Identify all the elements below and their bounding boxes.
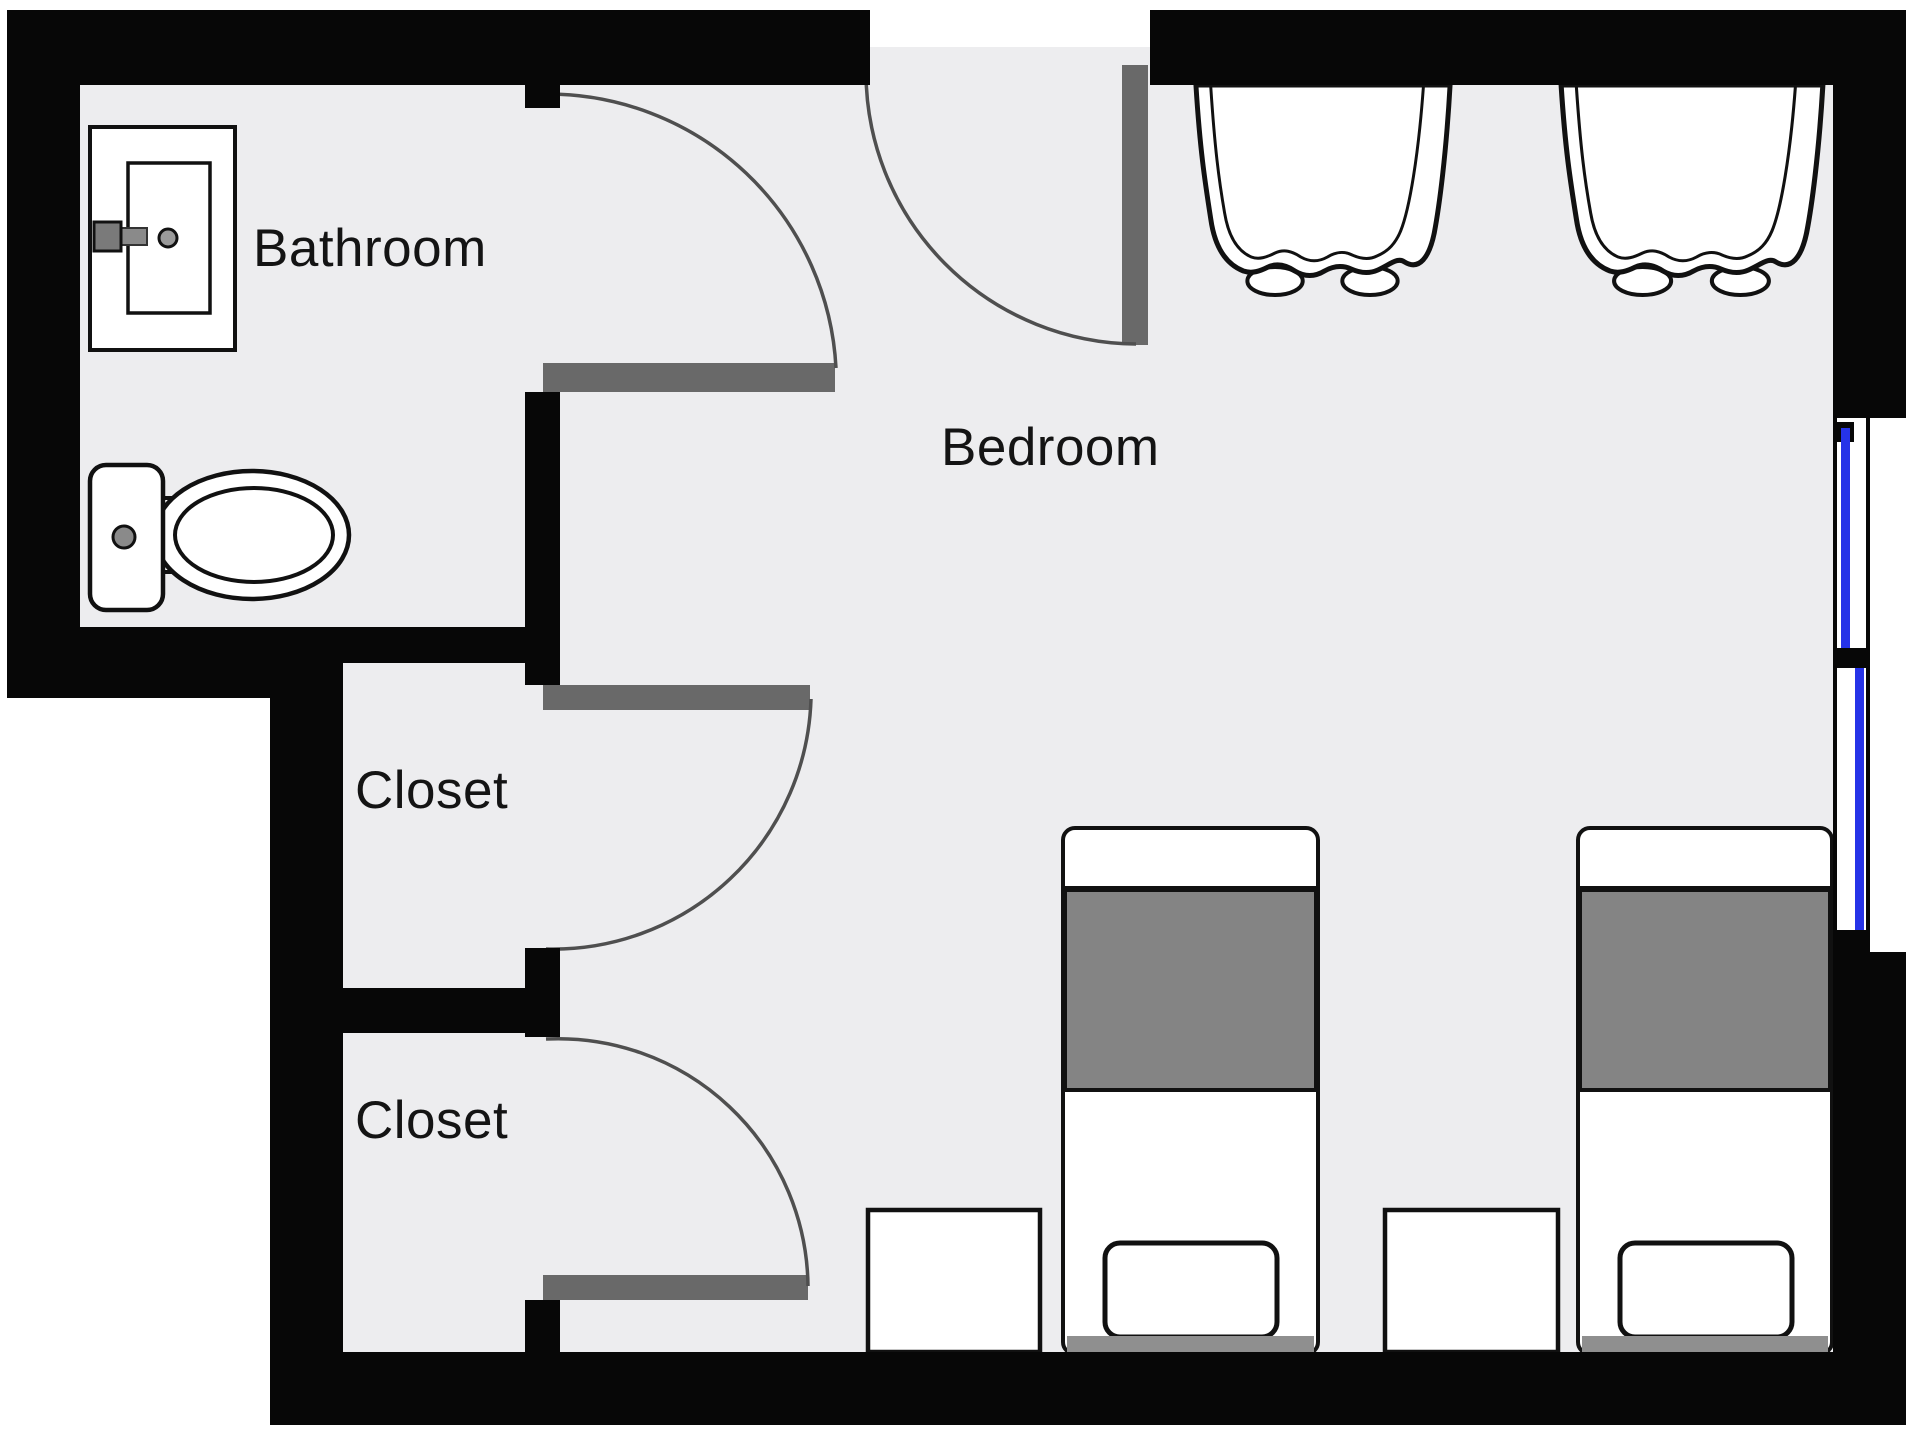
wall-closet-left-exterior — [270, 627, 343, 1425]
closet-upper-door-swing — [546, 699, 811, 949]
toilet-seat — [175, 488, 333, 582]
floor-plan: Bathroom Bedroom Closet Closet — [0, 0, 1920, 1433]
toilet-icon — [90, 465, 349, 610]
window-sash-lock-bottom — [1836, 930, 1866, 952]
window-glass-lower — [1855, 668, 1864, 930]
wall-top-right — [1150, 10, 1906, 85]
nightstand-left — [868, 1210, 1040, 1352]
curtain-icon-left — [1196, 85, 1450, 295]
sink-drain — [159, 229, 177, 247]
wall-bathroom-door-jamb — [525, 85, 560, 108]
closet-lower-door-swing — [546, 1039, 808, 1286]
bed-pillow — [1105, 1243, 1277, 1337]
wall-right-upper — [1833, 10, 1906, 418]
bed-blanket — [1065, 890, 1316, 1090]
wall-left-exterior — [7, 10, 80, 698]
bed-base-strip — [1067, 1336, 1314, 1353]
wall-between-closets — [343, 988, 560, 1033]
bathroom-door-leaf — [543, 363, 835, 392]
nightstand-middle — [1385, 1210, 1558, 1352]
window-frame-outer — [1866, 418, 1870, 952]
window-mullion — [1836, 648, 1866, 668]
wall-right-lower — [1833, 952, 1906, 1425]
bed-blanket — [1580, 890, 1830, 1090]
bed-right — [1578, 828, 1832, 1354]
wall-bottom-exterior — [270, 1352, 1906, 1425]
bed-left — [1063, 828, 1318, 1354]
bathroom-door-swing — [547, 94, 836, 368]
bed-pillow — [1620, 1243, 1792, 1337]
entry-door-leaf — [1122, 65, 1148, 345]
wall-closet-lower-jamb — [525, 1300, 560, 1352]
closet-lower-door-leaf — [543, 1275, 808, 1300]
room-label-bedroom: Bedroom — [941, 421, 1160, 474]
sink-icon — [90, 127, 235, 350]
wall-top-left — [7, 10, 870, 85]
window-glass-upper — [1841, 428, 1850, 648]
curtain-icon-right — [1561, 85, 1823, 295]
window-frame-inner — [1833, 418, 1837, 952]
sink-faucet-handle — [94, 222, 121, 251]
room-label-closet-lower: Closet — [355, 1094, 508, 1147]
room-label-closet-upper: Closet — [355, 764, 508, 817]
toilet-flush-button — [113, 526, 135, 548]
entry-door-swing — [866, 72, 1136, 344]
closet-upper-door-leaf — [543, 685, 810, 710]
wall-bathroom-east — [525, 392, 560, 685]
bed-base-strip — [1582, 1336, 1828, 1353]
room-label-bathroom: Bathroom — [253, 222, 487, 275]
